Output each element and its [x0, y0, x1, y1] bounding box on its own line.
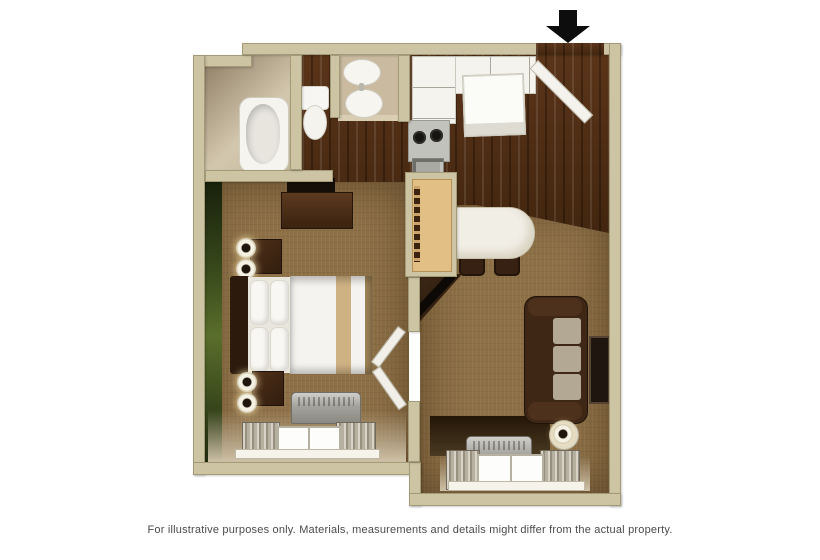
pillow-2 — [270, 280, 289, 325]
pillow-4 — [270, 327, 289, 372]
vanity-faucet — [359, 83, 364, 91]
breakfast-bar — [453, 207, 535, 259]
lamp-bottom-1 — [237, 372, 257, 392]
wall-bedroom-living-upper — [408, 277, 420, 332]
pass-through-rack — [414, 186, 420, 262]
wall-tub-room-right — [290, 55, 302, 170]
wall-vanity-kitchen — [398, 55, 410, 122]
dresser — [281, 192, 353, 229]
bathtub-basin — [246, 104, 280, 164]
wall-bedroom-living-lower — [408, 401, 420, 462]
bedroom-ac-unit — [291, 392, 361, 424]
wall-left — [193, 55, 205, 475]
bedroom-window-sill — [235, 449, 380, 459]
stove-burner-left — [413, 131, 426, 144]
ac-vents — [473, 441, 525, 450]
wall-bathroom-bottom — [205, 170, 333, 182]
bed-headboard — [230, 276, 250, 374]
sofa-arm-top — [528, 298, 582, 316]
floor-plan-illustration: For illustrative purposes only. Material… — [0, 0, 820, 560]
toilet-bowl — [303, 105, 327, 140]
lamp-bottom-2 — [237, 393, 257, 413]
pillow-1 — [250, 280, 269, 325]
sofa-arm-bottom — [528, 402, 582, 420]
stove-burner-right — [430, 129, 443, 142]
refrigerator — [462, 73, 526, 137]
sofa-cushions — [553, 318, 581, 400]
vanity-sink — [345, 89, 383, 118]
wall-bedroom-bottom — [193, 462, 421, 475]
vanity-mirror — [343, 59, 381, 86]
entry-door-opening — [536, 43, 604, 55]
wall-picture — [589, 336, 610, 404]
pillow-3 — [250, 327, 269, 372]
ac-vents — [298, 397, 354, 406]
lamp-top-1 — [236, 238, 256, 258]
wall-right — [609, 43, 621, 506]
entrance-arrow-icon — [546, 10, 590, 43]
bed-blanket — [290, 276, 372, 374]
disclaimer-caption: For illustrative purposes only. Material… — [0, 524, 820, 536]
wall-toilet-vanity — [330, 55, 340, 118]
living-floor-lamp — [553, 424, 573, 444]
living-window-sill — [448, 481, 585, 491]
wall-living-bottom — [409, 493, 621, 506]
kitchen-counter-left — [412, 56, 456, 124]
